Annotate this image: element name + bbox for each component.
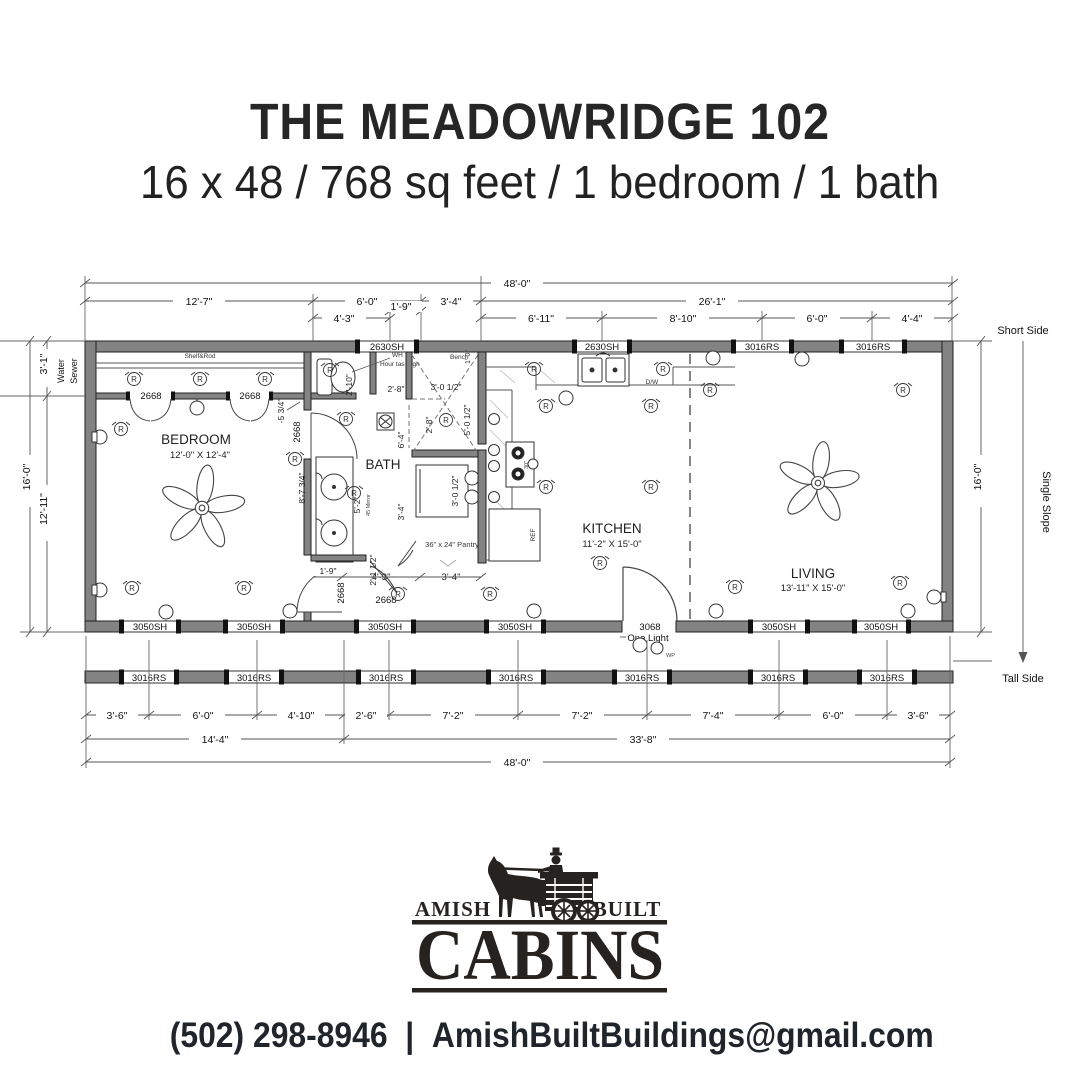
svg-text:3'-0 1/2": 3'-0 1/2" bbox=[430, 382, 461, 392]
svg-text:3050SH: 3050SH bbox=[498, 622, 532, 633]
svg-text:R: R bbox=[395, 590, 401, 599]
svg-text:R: R bbox=[292, 455, 298, 464]
svg-text:R: R bbox=[129, 584, 135, 593]
svg-text:12'-7": 12'-7" bbox=[186, 296, 213, 308]
svg-text:3'-1": 3'-1" bbox=[38, 353, 50, 374]
svg-text:3050SH: 3050SH bbox=[237, 622, 271, 633]
svg-text:4'-4": 4'-4" bbox=[902, 313, 923, 325]
svg-text:2'-6": 2'-6" bbox=[356, 710, 377, 722]
svg-text:3016RS: 3016RS bbox=[856, 342, 890, 353]
svg-text:11'-2" X 15'-0": 11'-2" X 15'-0" bbox=[582, 539, 641, 550]
svg-text:REF: REF bbox=[530, 528, 537, 541]
svg-text:8'-10": 8'-10" bbox=[670, 313, 697, 325]
svg-text:12'-0" X 12'-4": 12'-0" X 12'-4" bbox=[170, 450, 230, 461]
svg-text:WP: WP bbox=[666, 653, 675, 659]
svg-text:R: R bbox=[660, 365, 666, 374]
svg-text:R: R bbox=[118, 425, 124, 434]
svg-text:R: R bbox=[131, 375, 137, 384]
svg-text:3016RS: 3016RS bbox=[745, 342, 779, 353]
svg-text:2668: 2668 bbox=[336, 582, 347, 603]
svg-text:6'-0": 6'-0" bbox=[357, 296, 378, 308]
svg-text:R: R bbox=[197, 375, 203, 384]
svg-text:16'-0": 16'-0" bbox=[21, 463, 33, 490]
svg-text:1'-0": 1'-0" bbox=[465, 350, 472, 364]
svg-text:BEDROOM: BEDROOM bbox=[161, 432, 231, 447]
svg-text:2'-8": 2'-8" bbox=[424, 417, 434, 434]
svg-text:26'-1": 26'-1" bbox=[699, 296, 726, 308]
svg-text:6'-0": 6'-0" bbox=[807, 313, 828, 325]
svg-text:2'-10": 2'-10" bbox=[344, 374, 354, 396]
svg-text:3'-4": 3'-4" bbox=[442, 572, 461, 583]
svg-text:6'-0": 6'-0" bbox=[823, 710, 844, 722]
svg-text:Sewer: Sewer bbox=[69, 358, 79, 384]
svg-text:R: R bbox=[900, 386, 906, 395]
svg-text:3016RS: 3016RS bbox=[625, 673, 659, 684]
svg-text:14'-4": 14'-4" bbox=[202, 734, 229, 746]
svg-text:1'-9": 1'-9" bbox=[391, 301, 412, 313]
svg-text:3'-6": 3'-6" bbox=[908, 710, 929, 722]
svg-text:R: R bbox=[531, 365, 537, 374]
svg-text:R: R bbox=[327, 366, 333, 375]
svg-text:D/W: D/W bbox=[646, 379, 660, 386]
svg-text:4'-3": 4'-3" bbox=[372, 572, 391, 583]
svg-text:2630SH: 2630SH bbox=[585, 342, 619, 353]
svg-text:8'-7 3/4": 8'-7 3/4" bbox=[297, 472, 307, 503]
svg-text:LIVING: LIVING bbox=[791, 566, 835, 581]
svg-text:6'-11": 6'-11" bbox=[528, 313, 554, 325]
svg-text:R: R bbox=[597, 559, 603, 568]
svg-text:2668: 2668 bbox=[239, 391, 260, 402]
svg-text:2668: 2668 bbox=[375, 595, 396, 606]
svg-text:R: R bbox=[241, 584, 247, 593]
svg-text:48'-0": 48'-0" bbox=[504, 278, 531, 290]
svg-text:BATH: BATH bbox=[365, 457, 400, 472]
svg-text:Single Slope: Single Slope bbox=[1040, 471, 1052, 533]
svg-text:R: R bbox=[648, 483, 654, 492]
svg-text:1'-9": 1'-9" bbox=[320, 566, 337, 576]
svg-text:R: R bbox=[443, 416, 449, 425]
svg-text:KITCHEN: KITCHEN bbox=[582, 521, 641, 536]
svg-text:2668: 2668 bbox=[292, 421, 303, 442]
svg-text:3016RS: 3016RS bbox=[369, 673, 403, 684]
svg-text:3068: 3068 bbox=[639, 622, 660, 633]
svg-text:Tall Side: Tall Side bbox=[1002, 673, 1044, 685]
svg-text:3'-4": 3'-4" bbox=[441, 296, 462, 308]
svg-text:4'-10": 4'-10" bbox=[288, 710, 315, 722]
svg-text:Shelf&Rod: Shelf&Rod bbox=[184, 353, 215, 360]
svg-text:5'-0 1/2": 5'-0 1/2" bbox=[462, 404, 472, 435]
svg-text:13'-11" X 15'-0": 13'-11" X 15'-0" bbox=[781, 583, 846, 594]
svg-text:7'-4": 7'-4" bbox=[703, 710, 724, 722]
svg-text:3050SH: 3050SH bbox=[864, 622, 898, 633]
svg-text:R: R bbox=[543, 483, 549, 492]
svg-text:CABINS: CABINS bbox=[416, 915, 664, 995]
svg-text:12'-11": 12'-11" bbox=[38, 493, 50, 525]
svg-text:Short Side: Short Side bbox=[997, 325, 1048, 337]
svg-text:R: R bbox=[543, 402, 549, 411]
svg-text:48'-0": 48'-0" bbox=[504, 757, 531, 769]
svg-text:3'-6": 3'-6" bbox=[107, 710, 128, 722]
svg-text:33'-8": 33'-8" bbox=[630, 734, 657, 746]
svg-text:7'-2": 7'-2" bbox=[572, 710, 593, 722]
svg-text:WH: WH bbox=[392, 352, 403, 359]
svg-text:3050SH: 3050SH bbox=[762, 622, 796, 633]
svg-text:3'-0 1/2": 3'-0 1/2" bbox=[450, 475, 460, 506]
svg-text:3016RS: 3016RS bbox=[761, 673, 795, 684]
svg-text:36" x 24" Pantry: 36" x 24" Pantry bbox=[425, 540, 479, 549]
svg-text:2'-8": 2'-8" bbox=[388, 384, 405, 394]
svg-text:4'-3": 4'-3" bbox=[334, 313, 355, 325]
svg-text:Hour tas High: Hour tas High bbox=[380, 361, 420, 368]
svg-text:3050SH: 3050SH bbox=[368, 622, 402, 633]
svg-text:R: R bbox=[648, 402, 654, 411]
svg-text:3016RS: 3016RS bbox=[237, 673, 271, 684]
svg-text:R: R bbox=[487, 590, 493, 599]
svg-text:R: R bbox=[707, 386, 713, 395]
svg-text:R: R bbox=[343, 415, 349, 424]
svg-text:16'-0": 16'-0" bbox=[972, 463, 984, 490]
svg-text:3'-4": 3'-4" bbox=[396, 504, 406, 521]
svg-text:R: R bbox=[351, 489, 357, 498]
svg-text:6'-4": 6'-4" bbox=[396, 432, 406, 449]
svg-text:R: R bbox=[732, 583, 738, 592]
svg-text:3016RS: 3016RS bbox=[499, 673, 533, 684]
svg-text:6'-0": 6'-0" bbox=[193, 710, 214, 722]
svg-text:45 Mirror: 45 Mirror bbox=[366, 494, 372, 516]
svg-text:7'-2": 7'-2" bbox=[443, 710, 464, 722]
svg-text:R: R bbox=[262, 375, 268, 384]
svg-text:-5 3/4": -5 3/4" bbox=[276, 399, 286, 424]
svg-text:2668: 2668 bbox=[140, 391, 161, 402]
svg-text:Water: Water bbox=[56, 359, 66, 383]
svg-text:R: R bbox=[897, 579, 903, 588]
svg-text:3050SH: 3050SH bbox=[133, 622, 167, 633]
